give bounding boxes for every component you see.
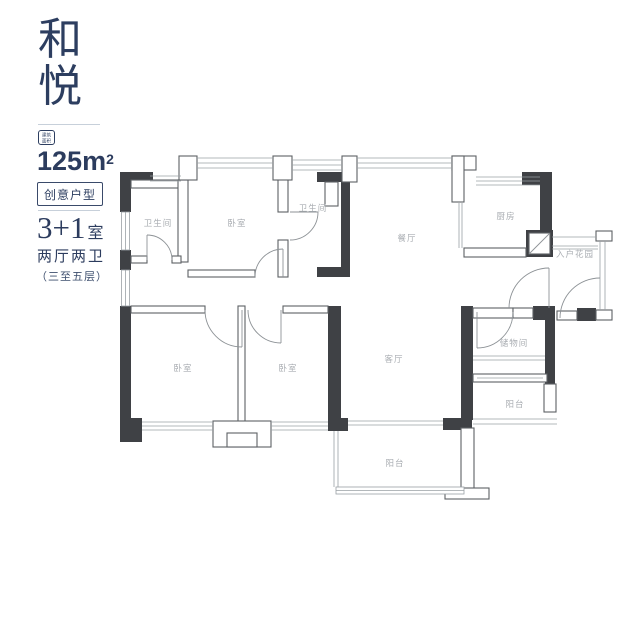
area-value: 125m2 — [37, 146, 114, 177]
room-label-bedroom-left: 卧室 — [173, 363, 192, 373]
room-label-entry-garden: 入户花园 — [556, 249, 594, 259]
title-char-1: 和 — [38, 16, 84, 63]
walls-light — [131, 156, 612, 499]
room-label-bathroom-1: 卫生间 — [144, 218, 173, 228]
room-label-bedroom-mid: 卧室 — [278, 363, 297, 373]
room-label-balcony-small: 阳台 — [505, 399, 524, 409]
floors-note: （三至五层） — [36, 268, 108, 284]
room-label-dining: 餐厅 — [397, 233, 416, 243]
layout-count: 3+1 — [37, 210, 85, 245]
badge-line-1: 建筑 — [42, 133, 51, 138]
room-label-kitchen: 厨房 — [496, 211, 515, 221]
room-label-storage: 储物间 — [500, 338, 529, 348]
layout-summary: 3+1室 — [37, 212, 104, 243]
room-label-bathroom-2: 卫生间 — [299, 203, 328, 213]
badge-line-2: 面积 — [42, 139, 51, 144]
project-title: 和 悦 — [38, 16, 84, 110]
halls-baths-line: 两厅两卫 — [37, 245, 105, 266]
layout-suffix: 室 — [87, 225, 103, 242]
room-label-living: 客厅 — [384, 354, 403, 364]
divider-top — [38, 124, 100, 125]
building-area-badge: 建筑 面积 — [38, 130, 55, 145]
floor-plan: 卫生间 卧室 卫生间 餐厅 厨房 入户花园 卧室 卧室 客厅 储物间 阳台 阳台 — [110, 135, 630, 515]
creative-layout-tag: 创意户型 — [37, 182, 103, 206]
room-label-bedroom-top: 卧室 — [227, 218, 246, 228]
windows — [122, 158, 606, 494]
title-char-2: 悦 — [38, 63, 84, 110]
room-label-balcony-large: 阳台 — [385, 458, 404, 468]
